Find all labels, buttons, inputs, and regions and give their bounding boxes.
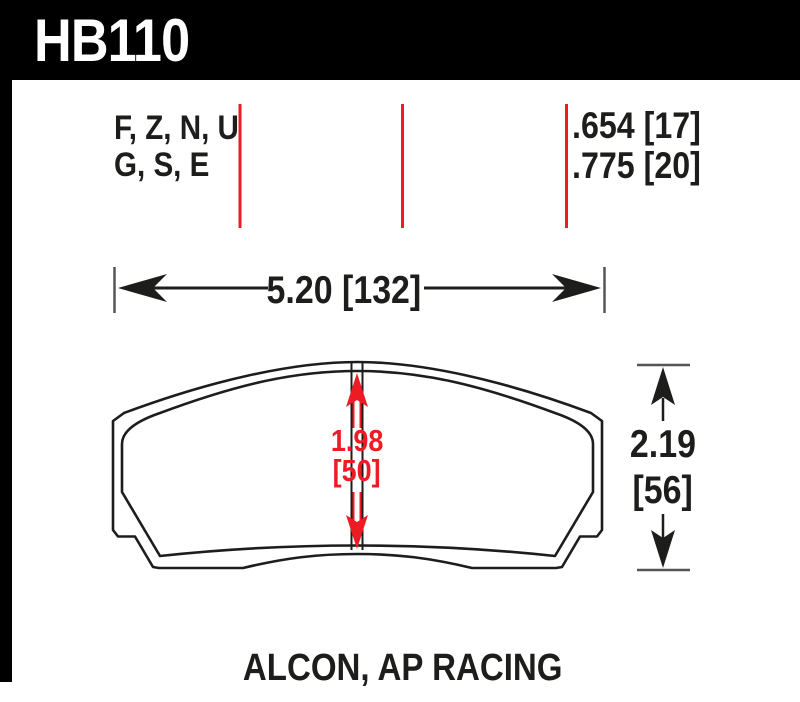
height-dim-label: 2.19 [56] [615, 422, 711, 514]
friction-dim-value: 1.98 [331, 426, 383, 456]
pad-thickness-values: .654 [17] .775 [20] [572, 106, 720, 186]
catalog-page: HB110 [0, 0, 800, 702]
friction-dim-mm: [50] [333, 456, 381, 486]
height-dim-mm: [56] [633, 468, 693, 514]
caption-wrap: ALCON, AP RACING [6, 647, 800, 690]
compound-codes-line2: G, S, E [114, 147, 209, 184]
pad-thickness-line2: .775 [20] [572, 146, 701, 186]
height-dim-value: 2.19 [630, 422, 696, 468]
friction-dim-arrow-down-icon [346, 515, 368, 549]
friction-dim-label: 1.98 [50] [281, 426, 433, 486]
pad-thickness-line1: .654 [17] [572, 106, 701, 146]
compound-codes: F, Z, N, U G, S, E [114, 110, 258, 184]
width-dim-label-wrap: 5.20 [132] [244, 269, 444, 313]
caption-text: ALCON, AP RACING [243, 647, 563, 690]
width-dim-label: 5.20 [132] [267, 269, 422, 313]
compound-codes-line1: F, Z, N, U [114, 110, 239, 147]
friction-dim-arrow-up-icon [346, 373, 368, 407]
